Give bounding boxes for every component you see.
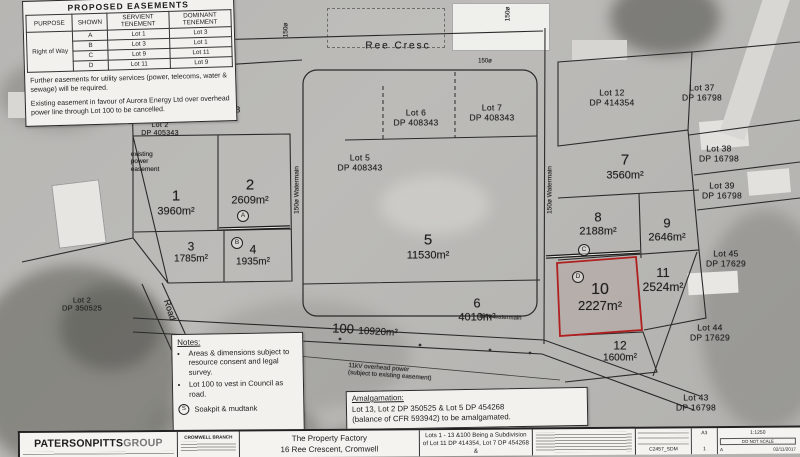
col-servient: SERVIENT TENEMENT: [107, 11, 169, 30]
adjoining-lot45-dp17629: Lot 45DP 17629: [706, 249, 746, 268]
drawing-number: C2457_SDM: [638, 446, 689, 452]
shown-cell: D: [74, 60, 109, 71]
dashed-boundaries: [383, 72, 455, 139]
note-areas-dimensions: Areas & dimensions subject to resource c…: [188, 347, 297, 377]
watermain-label-right: 150ø Watermain: [546, 166, 553, 214]
amalgamation-box: Amalgamation: Lot 13, Lot 2 DP 350525 & …: [346, 387, 589, 431]
easement-mark-d: D: [572, 271, 584, 283]
revision-letter: A: [720, 447, 723, 452]
lot-2-label: 22609m²: [231, 177, 268, 206]
adjoining-lot7-dp408343: Lot 7DP 408343: [469, 103, 514, 122]
branch-name: CROMWELL BRANCH: [181, 434, 236, 439]
plan-date: 02/11/2017: [773, 447, 796, 452]
col-shown: SHOWN: [72, 13, 107, 31]
adjoining-lot44-dp17629: Lot 44DP 17629: [690, 323, 730, 342]
sheet-size-box: A3 1: [692, 428, 718, 454]
watermain-label-left: 150ø Watermain: [293, 166, 300, 214]
easement-note-utilities: Further easements for utility services (…: [30, 71, 230, 95]
notes-title: Notes:: [177, 336, 297, 347]
title-block: PATERSONPITTSGROUP CROMWELL BRANCH The P…: [18, 426, 800, 457]
scale-box: 1:1250 DO NOT SCALE A 02/11/2017: [718, 428, 798, 455]
lot-4-label: 41935m²: [236, 244, 270, 269]
lot-5-label: 511530m²: [407, 232, 450, 261]
adjoining-lot12-dp414354: Lot 12DP 414354: [589, 88, 634, 107]
easement-mark-a: A: [237, 210, 249, 222]
do-not-scale: DO NOT SCALE: [720, 438, 796, 446]
lot-1-label: 13960m²: [157, 188, 194, 217]
lot-9-label: 92646m²: [648, 217, 685, 244]
adjoining-lot43-dp16798: Lot 43DP 16798: [676, 393, 716, 412]
client-address: 16 Ree Crescent, Cromwell: [243, 444, 416, 456]
lot-11-label: 112524m²: [643, 266, 684, 294]
plan-title-line2: of Lot 11 DP 414354, Lot 7 DP 454268 &: [423, 439, 529, 456]
adjoining-lot39-dp16798: Lot 39DP 16798: [702, 181, 742, 200]
col-purpose: PURPOSE: [26, 14, 73, 32]
lot-100-label: 100 10920m²: [332, 319, 398, 340]
adjoining-lot5-dp408343: Lot 5DP 408343: [337, 153, 382, 172]
lot-12-label: 121600m²: [603, 340, 637, 365]
revision-table: C2457_SDM A3 1 1:1250 DO NOT SCALE A 02/…: [636, 428, 798, 455]
fine-print-box: [533, 429, 636, 456]
note-lot100-vest: Lot 100 to vest in Council as road.: [189, 378, 298, 399]
revision-rows: C2457_SDM: [636, 428, 692, 454]
plan-title-box: Lots 1 - 13 &100 Being a Subdivision of …: [420, 429, 533, 456]
surveyor-firm-name: PATERSONPITTSGROUP: [20, 432, 178, 457]
sheet-size: A3: [701, 430, 707, 436]
adjoining-lot6-dp408343: Lot 6DP 408343: [393, 108, 438, 127]
dim-150-label: 150ø: [504, 7, 511, 22]
notes-box: Notes: Areas & dimensions subject to res…: [171, 332, 305, 440]
adjoining-lot2-dp405343: Lot 2DP 405343: [141, 122, 179, 138]
client-box: The Property Factory 16 Ree Crescent, Cr…: [240, 430, 420, 457]
easement-note-existing: Existing easement in favour of Aurora En…: [31, 94, 231, 118]
purpose-cell: Right of Way: [26, 31, 74, 72]
dim-150-label: 150ø: [282, 23, 289, 38]
survey-plan-scan: 13960m² 22609m² 31785m² 41935m² 511530m²…: [0, 0, 800, 457]
soakpit-symbol: S: [178, 404, 189, 415]
lot-3-label: 31785m²: [174, 241, 208, 266]
lot-8-label: 82188m²: [579, 211, 616, 238]
proposed-easements-table: PROPOSED EASEMENTS PURPOSE SHOWN SERVIEN…: [22, 0, 237, 127]
col-dominant: DOMINANT TENEMENT: [169, 10, 231, 29]
lot-7-label: 73560m²: [606, 152, 643, 181]
lot-10-label: 102227m²: [578, 281, 622, 313]
soakpit-legend-text: Soakpit & mudtank: [194, 404, 257, 414]
branch-box: CROMWELL BRANCH: [178, 431, 240, 457]
scale-value: 1:1250: [720, 430, 796, 437]
adjoining-lot37-dp16798: Lot 37DP 16798: [682, 83, 722, 102]
easement-mark-b: B: [231, 237, 243, 249]
dim-150-label: 150ø: [478, 59, 492, 66]
sheet-number: 1: [703, 446, 706, 452]
street-ree-cresc: Ree Cresc: [365, 40, 430, 51]
easement-mark-c: C: [578, 244, 590, 256]
existing-power-easement-note: existing power easement: [131, 151, 160, 173]
adjoining-lot2-dp350525: Lot 2DP 350525: [62, 297, 102, 314]
adjoining-lot38-dp16798: Lot 38DP 16798: [699, 144, 739, 163]
